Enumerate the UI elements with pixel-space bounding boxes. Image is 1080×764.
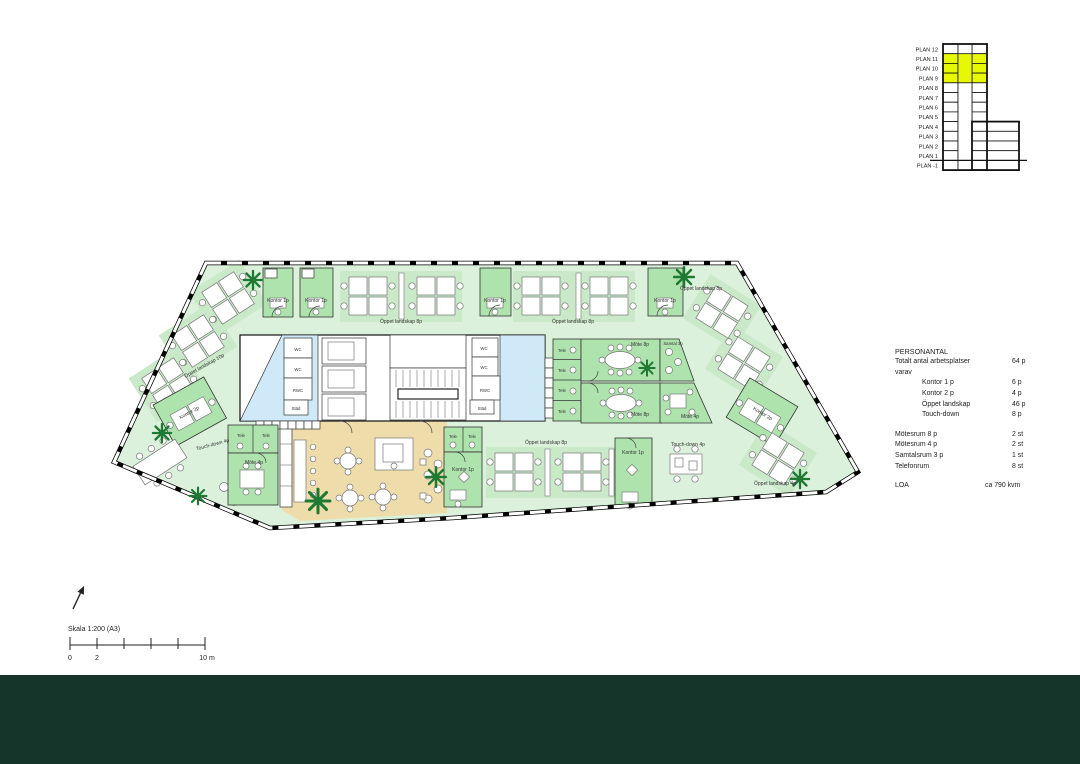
floor-cell-left (943, 122, 958, 132)
core-shaft-highlight (958, 54, 972, 83)
floor-cell-right (972, 83, 987, 93)
row-label: Touch-down (895, 411, 959, 418)
room-label-oppet-landskap-8p: Öppet landskap 8p (552, 318, 594, 325)
floor-cell-annex (972, 151, 1019, 161)
room-label-rwc: RWC (293, 388, 303, 393)
stairs (390, 335, 466, 420)
row-label: Mötesrum 4 p (895, 441, 937, 448)
room-label-tele: Tele (558, 388, 566, 393)
scale-bar: Skala 1:200 (A3) 0 2 10 m (68, 626, 215, 662)
floor-label: PLAN 12 (916, 47, 938, 53)
cafe-area (280, 421, 447, 521)
personantal-row: Kontor 2 p4 p (895, 390, 1037, 401)
row-label: Kontor 1 p (895, 379, 954, 386)
room-label-mote-8p: Möte 8p (631, 342, 649, 348)
personantal-row: Mötesrum 4 p2 st (895, 441, 1037, 452)
floor-cell-left (943, 93, 958, 103)
floor-label: PLAN 7 (919, 96, 938, 102)
floor-cell-left (943, 160, 958, 170)
floor-cell-annex (972, 122, 1019, 132)
room-label-oppet-landskap-8p: Öppet landskap 8p (380, 318, 422, 325)
room-label-oppet-landskap-8p: Öppet landskap 8p (525, 439, 567, 446)
personantal-row: Totalt antal arbetsplatser64 p (895, 358, 1037, 369)
floor-cell-left (943, 83, 958, 93)
room-label-mote-4p: Möte 4p (245, 460, 263, 466)
personantal-row: Telefonrum8 st (895, 463, 1037, 474)
room-label-oppet-landskap-4p: Öppet landskap 4p (754, 480, 796, 487)
elevators (322, 338, 366, 420)
floor-cell-annex (972, 160, 1019, 170)
floor-cell-right (972, 44, 987, 54)
room-label-samtal-3p: Samtal 3p (663, 341, 683, 346)
room-label-wc: WC (480, 346, 487, 351)
building-core (240, 335, 556, 429)
personantal-row: Touch-down8 p (895, 411, 1037, 422)
personantal-row: Kontor 1 p6 p (895, 379, 1037, 390)
row-label: Samtalsrum 3 p (895, 452, 943, 459)
row-label: Telefonrum (895, 463, 929, 470)
room-label-mote-8p: Möte 8p (631, 412, 649, 418)
room-label-wc: WC (294, 347, 301, 352)
room-label-tele: Tele (237, 433, 245, 438)
row-label: Mötesrum 8 p (895, 431, 937, 438)
scale-tick-10m: 10 m (199, 655, 215, 662)
room-label-tele: Tele (468, 434, 476, 439)
floor-label: PLAN 8 (919, 86, 938, 92)
room-label-stad: Städ (292, 406, 301, 411)
floor-cell-left (943, 44, 958, 54)
row-value: 46 p (1012, 401, 1025, 408)
row-value: 8 st (1012, 463, 1023, 470)
building-stack-diagram: PLAN 12PLAN 11PLAN 10PLAN 9PLAN 8PLAN 7P… (905, 41, 1035, 181)
room-label-tele: Tele (449, 434, 457, 439)
room-label-kontor-1p: Kontor 1p (654, 298, 676, 304)
floor-label: PLAN 3 (919, 135, 938, 141)
floor-cell-annex (972, 131, 1019, 141)
title-block: Flow Hyllie Möblerat typplan vån 9-11 Sk… (0, 675, 1080, 764)
floor-cell-right (972, 54, 987, 64)
floor-label: PLAN 2 (919, 144, 938, 150)
floor-cell-right (972, 112, 987, 122)
personantal-row: varav (895, 369, 1037, 380)
floor-cell-annex (972, 141, 1019, 151)
row-label: Totalt antal arbetsplatser (895, 358, 970, 365)
row-value: 8 p (1012, 411, 1022, 418)
drawing-sheet: Kontor 1p Kontor 1p Kontor 1p Kontor 1p … (0, 0, 1080, 764)
personantal-row: Samtalsrum 3 p1 st (895, 452, 1037, 463)
personantal-row: LOAca 790 kvm (895, 482, 1037, 493)
row-value: 4 p (1012, 390, 1022, 397)
floor-cell-left (943, 131, 958, 141)
floor-cell-left (943, 102, 958, 112)
room-label-mote-4p: Möte 4p (681, 414, 699, 420)
personantal-table: PERSONANTAL Totalt antal arbetsplatser64… (895, 347, 1037, 493)
room-label-rwc: RWC (480, 388, 490, 393)
row-label: LOA (895, 482, 909, 489)
row-value: 64 p (1012, 358, 1025, 365)
floor-cell-right (972, 93, 987, 103)
row-value: 6 p (1012, 379, 1022, 386)
table-spacer (895, 473, 1037, 482)
room-label-oppet-landskap-8p: Öppet landskap 8p (680, 285, 722, 292)
floor-label: PLAN -1 (917, 164, 938, 170)
room-label-kontor-1p: Kontor 1p (484, 298, 506, 304)
room-label-kontor-1p: Kontor 1p (267, 298, 289, 304)
floor-cell-right (972, 63, 987, 73)
scale-tick-0: 0 (68, 655, 72, 662)
room-label-tele: Tele (558, 348, 566, 353)
scale-bar-title: Skala 1:200 (A3) (68, 626, 120, 633)
room-label-tele: Tele (558, 409, 566, 414)
room-label-wc: WC (480, 365, 487, 370)
floor-cell-right (972, 102, 987, 112)
floor-cell-right (972, 73, 987, 83)
room-label-tele: Tele (262, 433, 270, 438)
floor-label: PLAN 6 (919, 106, 938, 112)
room-label-tele: Tele (558, 368, 566, 373)
floor-label: PLAN 9 (919, 76, 938, 82)
floor-cell-left (943, 141, 958, 151)
floor-label: PLAN 11 (916, 57, 938, 63)
room-label-stad: Städ (478, 406, 487, 411)
row-label: Kontor 2 p (895, 390, 954, 397)
floor-label: PLAN 4 (919, 125, 938, 131)
personantal-row: Mötesrum 8 p2 st (895, 431, 1037, 442)
row-value: 2 st (1012, 441, 1023, 448)
floor-cell-left (943, 73, 958, 83)
room-label-wc: WC (294, 367, 301, 372)
row-value: 2 st (1012, 431, 1023, 438)
room-label-kontor-1p: Kontor 1p (622, 450, 644, 456)
floor-label: PLAN 10 (916, 67, 938, 73)
personantal-row: Öppet landskap46 p (895, 401, 1037, 412)
floor-label: PLAN 5 (919, 115, 938, 121)
floor-cell-left (943, 112, 958, 122)
floor-label: PLAN 1 (919, 154, 938, 160)
north-arrow-icon (73, 586, 84, 609)
row-value: ca 790 kvm (985, 482, 1020, 489)
row-label: Öppet landskap (895, 401, 970, 408)
room-label-touch-down-4p: Touch-down 4p (671, 442, 705, 448)
row-label: varav (895, 369, 912, 376)
floor-cell-left (943, 54, 958, 64)
table-spacer (895, 422, 1037, 431)
floor-cell-left (943, 63, 958, 73)
room-label-kontor-1p: Kontor 1p (305, 298, 327, 304)
room-label-kontor-1p: Kontor 1p (452, 467, 474, 473)
scale-tick-2: 2 (95, 655, 99, 662)
floor-cell-left (943, 151, 958, 161)
personantal-title: PERSONANTAL (895, 347, 1037, 358)
row-value: 1 st (1012, 452, 1023, 459)
